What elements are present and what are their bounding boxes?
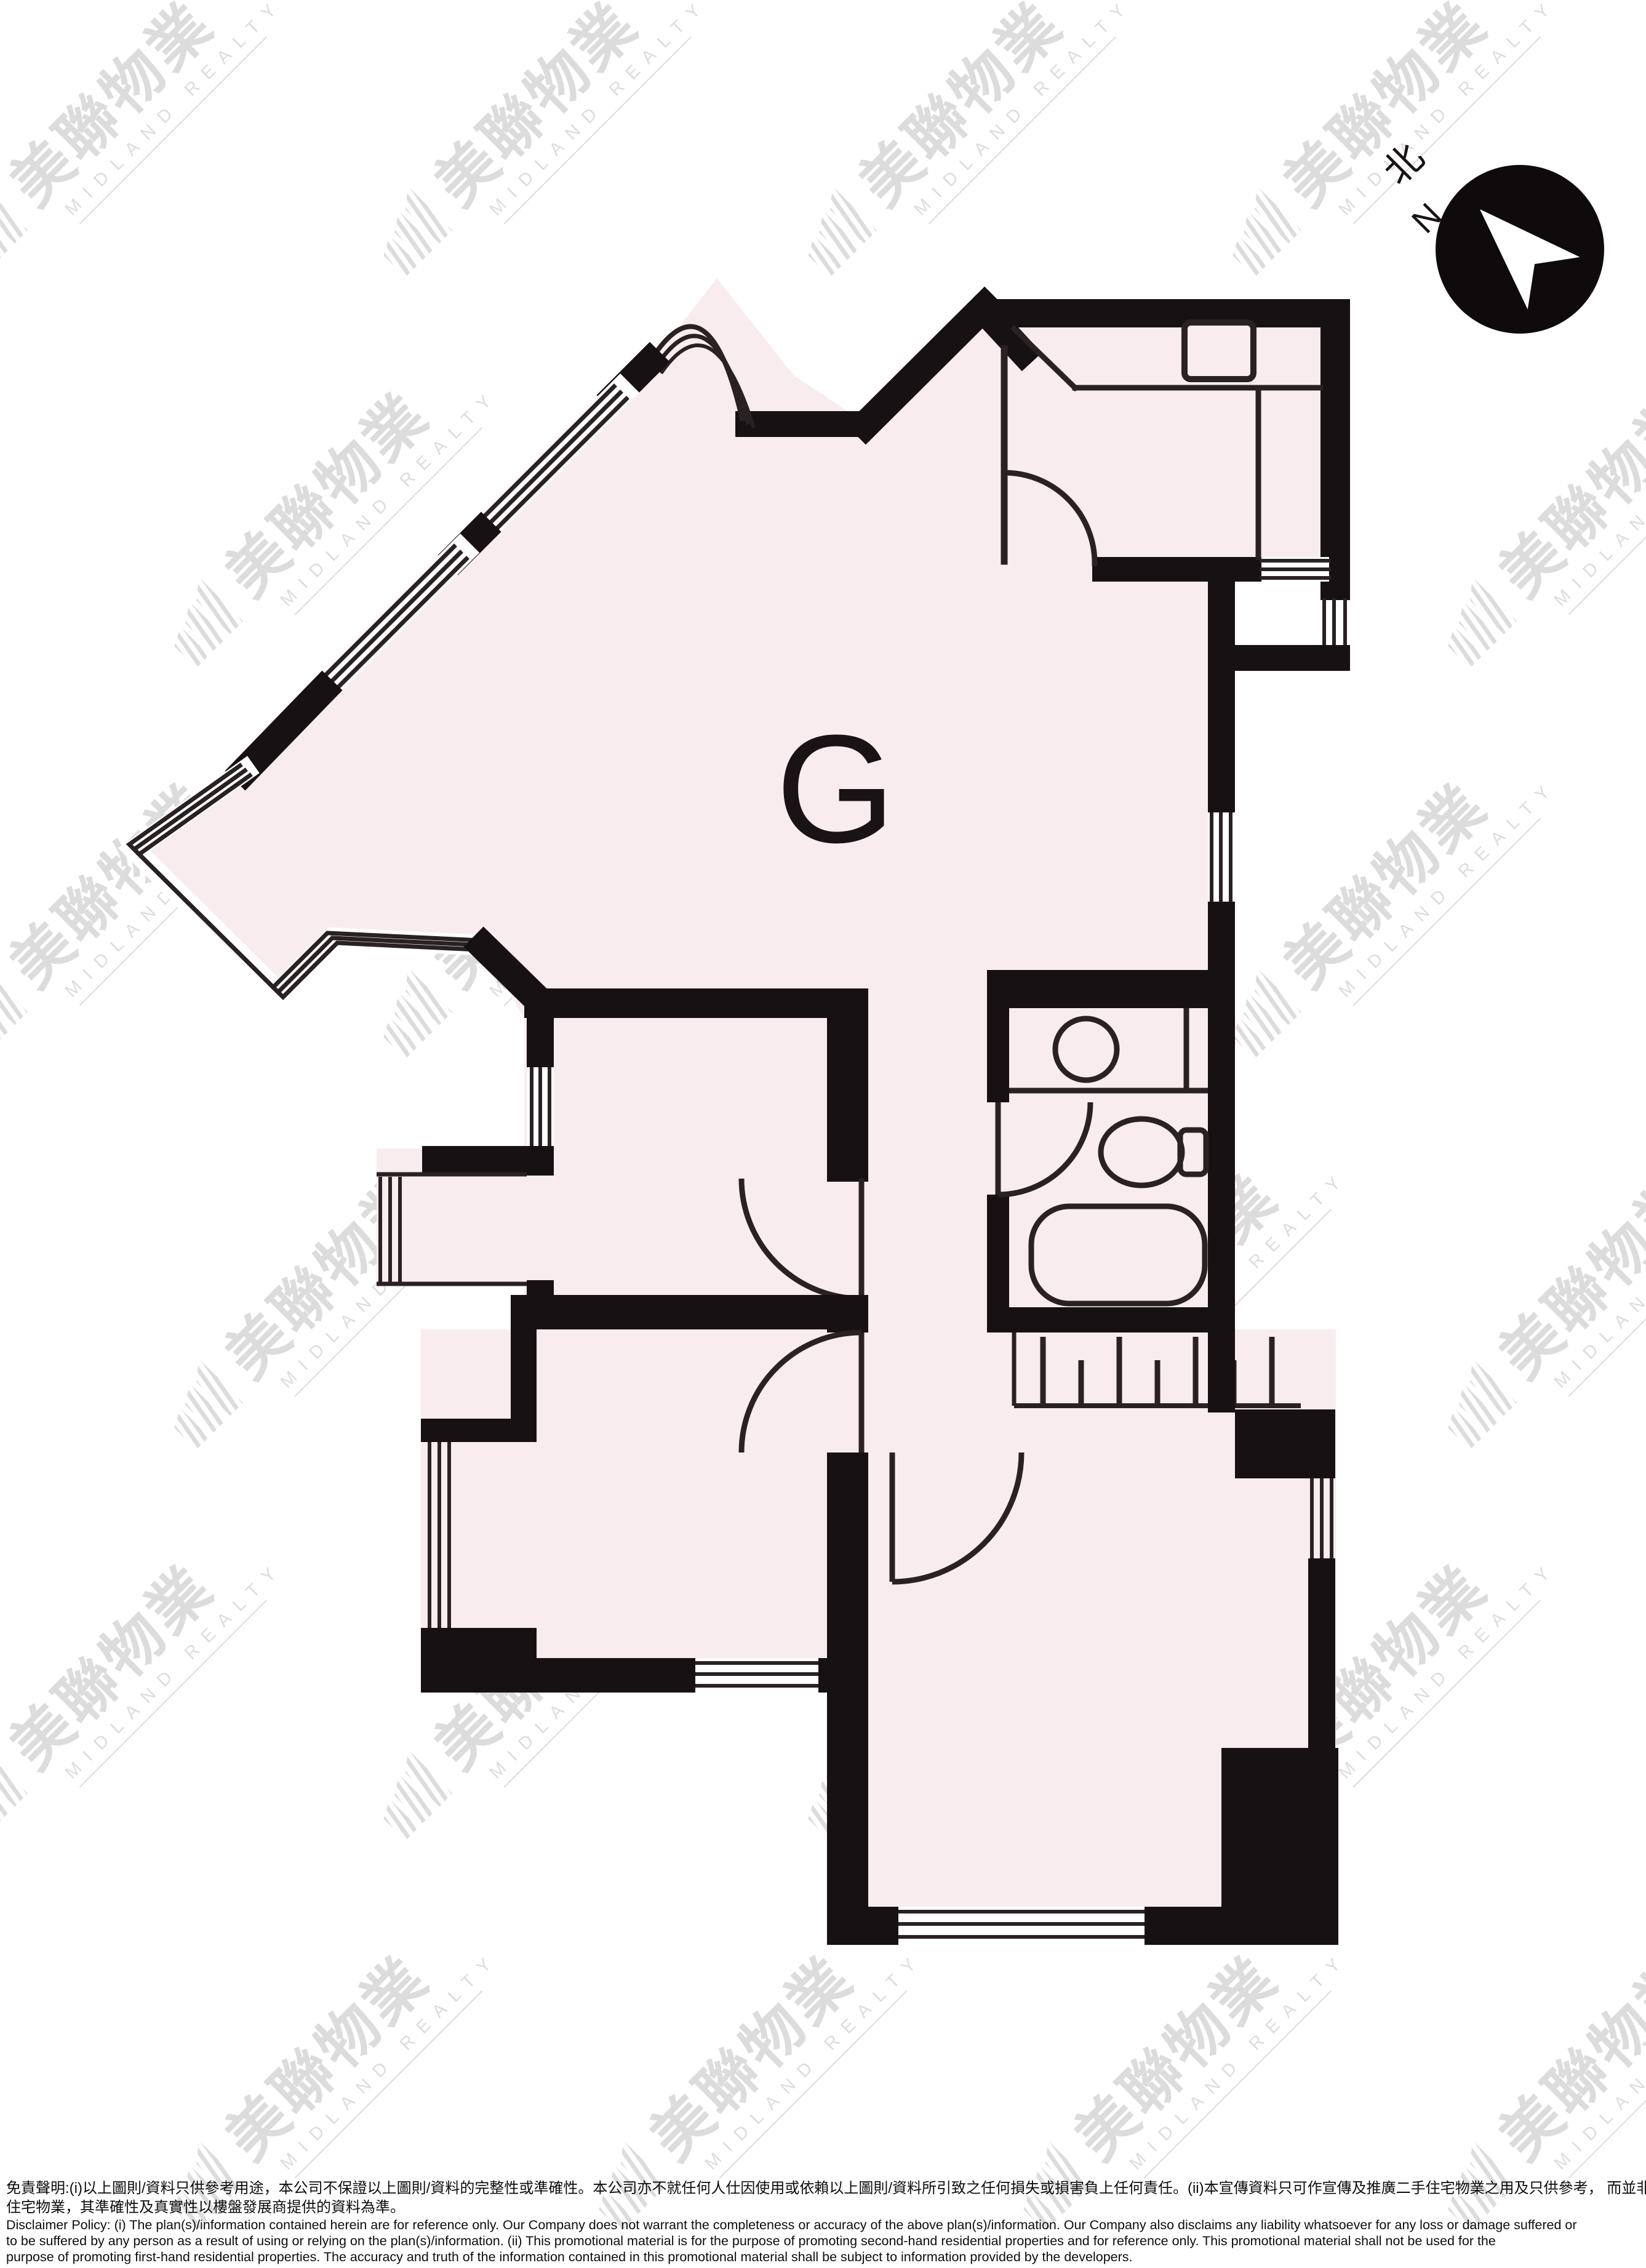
kitchen-sink (1185, 323, 1253, 379)
wall (976, 299, 1348, 327)
disclaimer-line: to be suffered by any person as a result… (6, 2233, 1642, 2249)
disclaimer-line: Disclaimer Policy: (i) The plan(s)/infor… (6, 2217, 1642, 2233)
compass: 北 N (1375, 136, 1604, 334)
wall (1208, 1332, 1235, 1412)
wall (1235, 1409, 1335, 1478)
disclaimer-line: purpose of promoting first-hand resident… (6, 2249, 1642, 2265)
kitchen-bottom-window (1261, 557, 1329, 582)
wall (421, 1419, 537, 1442)
wall (422, 1146, 554, 1176)
wall (827, 1693, 868, 1945)
wall (1308, 1558, 1335, 1755)
floorplan-drawing: G (0, 0, 1646, 2268)
foyer-right-window (1208, 812, 1235, 902)
wall (827, 1453, 868, 1693)
wall (987, 1307, 1235, 1332)
structural-column (1221, 1748, 1338, 1945)
compass-label-cn: 北 (1375, 136, 1432, 193)
wall (1208, 979, 1235, 1332)
foyer (1208, 580, 1235, 979)
wall (524, 988, 845, 1018)
bedroom3-bottom-window (898, 1907, 1145, 1945)
wall (527, 1013, 554, 1070)
wall (987, 970, 1235, 1008)
wall (1208, 580, 1235, 979)
wall (421, 1628, 537, 1658)
bedroom2-bottom-window (695, 1658, 818, 1693)
unit-label: G (776, 703, 895, 875)
bedroom1-floor (524, 988, 868, 1329)
disclaimer-block: 免責聲明:(i)以上圖則/資料只供參考用途，本公司不保證以上圖則/資料的完整性或… (6, 2179, 1642, 2265)
bedroom1-left-window (527, 1067, 554, 1146)
floor-areas (134, 278, 1348, 1945)
wall (735, 411, 868, 437)
disclaimer-line: 住宅物業，其準確性及真實性以樓盤發展商提供的資料為準。 (6, 2198, 1642, 2217)
wall (987, 970, 1009, 1102)
bedroom-divider-wall (511, 1295, 868, 1329)
disclaimer-line: 免責聲明:(i)以上圖則/資料只供參考用途，本公司不保證以上圖則/資料的完整性或… (6, 2179, 1642, 2198)
floorplan-page: 美聯物業MIDLAND REALTY美聯物業MIDLAND REALTY美聯物業… (0, 0, 1646, 2268)
